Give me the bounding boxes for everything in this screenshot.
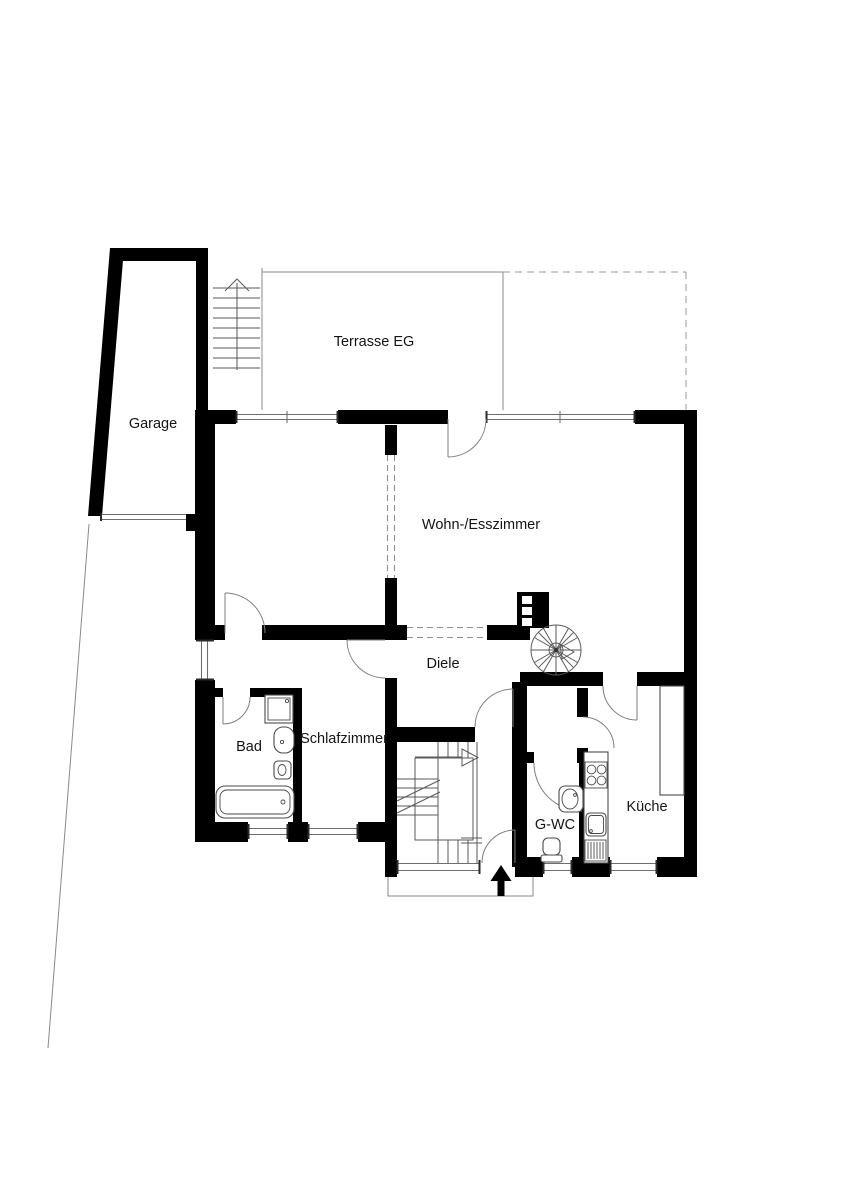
room-label-terrace: Terrasse EG (334, 334, 415, 350)
open-passage-living-west (388, 455, 395, 578)
window-south-bedroom (308, 824, 358, 839)
kitchen-counter-right (660, 686, 684, 795)
door-terrace-living (448, 419, 486, 457)
main-staircase-icon (397, 742, 482, 863)
spiral-staircase-icon (531, 625, 581, 675)
kitchen-fixtures (584, 686, 684, 863)
door-bathroom (223, 697, 250, 724)
shower-icon (265, 695, 293, 723)
door-entrance (482, 830, 515, 863)
garage-wall-top (110, 248, 208, 261)
room-label-guest-wc: G-WC (535, 817, 575, 833)
chimney-icon (517, 592, 549, 628)
floor-plan-page: Garage Terrasse EG Wohn-/Esszimmer Diele… (0, 0, 848, 1200)
property-boundary-line (48, 524, 89, 1048)
terrace-outline (262, 268, 686, 410)
window-north-1 (236, 411, 338, 423)
room-label-bedroom: Schlafzimmer (300, 731, 388, 747)
exterior-stair-icon (213, 279, 260, 370)
window-south-kitchen (610, 860, 657, 874)
floor-plan-svg: Garage Terrasse EG Wohn-/Esszimmer Diele… (0, 0, 848, 1200)
door-living-kitchen (603, 686, 637, 720)
door-bedroom (347, 640, 385, 678)
wc-sink-icon (559, 786, 583, 812)
room-label-garage: Garage (129, 416, 177, 432)
door-hall-stairhall (475, 689, 513, 727)
room-label-bathroom: Bad (236, 739, 262, 755)
entrance-porch-outline (388, 877, 533, 896)
wc-toilet-icon (541, 838, 562, 862)
open-passage-hall-north (407, 628, 487, 638)
kitchen-sink-icon (586, 813, 606, 836)
bathroom-fixtures (216, 695, 294, 818)
room-label-kitchen: Küche (626, 799, 667, 815)
bath-toilet-icon (274, 761, 291, 779)
door-west-room (225, 593, 265, 633)
entrance-arrow-icon (491, 865, 512, 896)
bath-sink-icon (274, 727, 294, 753)
room-label-living-dining: Wohn-/Esszimmer (422, 517, 540, 533)
window-south-bath (248, 824, 288, 839)
door-kitchen-vestibule (583, 717, 614, 748)
garage-door (101, 513, 196, 521)
window-west-bath (196, 640, 214, 680)
garage-wall-left (88, 248, 124, 516)
garage-wall-right (196, 248, 208, 412)
room-label-hall: Diele (426, 656, 459, 672)
bathtub-icon (216, 786, 294, 818)
window-north-2 (486, 411, 635, 423)
room-garage (88, 248, 208, 531)
